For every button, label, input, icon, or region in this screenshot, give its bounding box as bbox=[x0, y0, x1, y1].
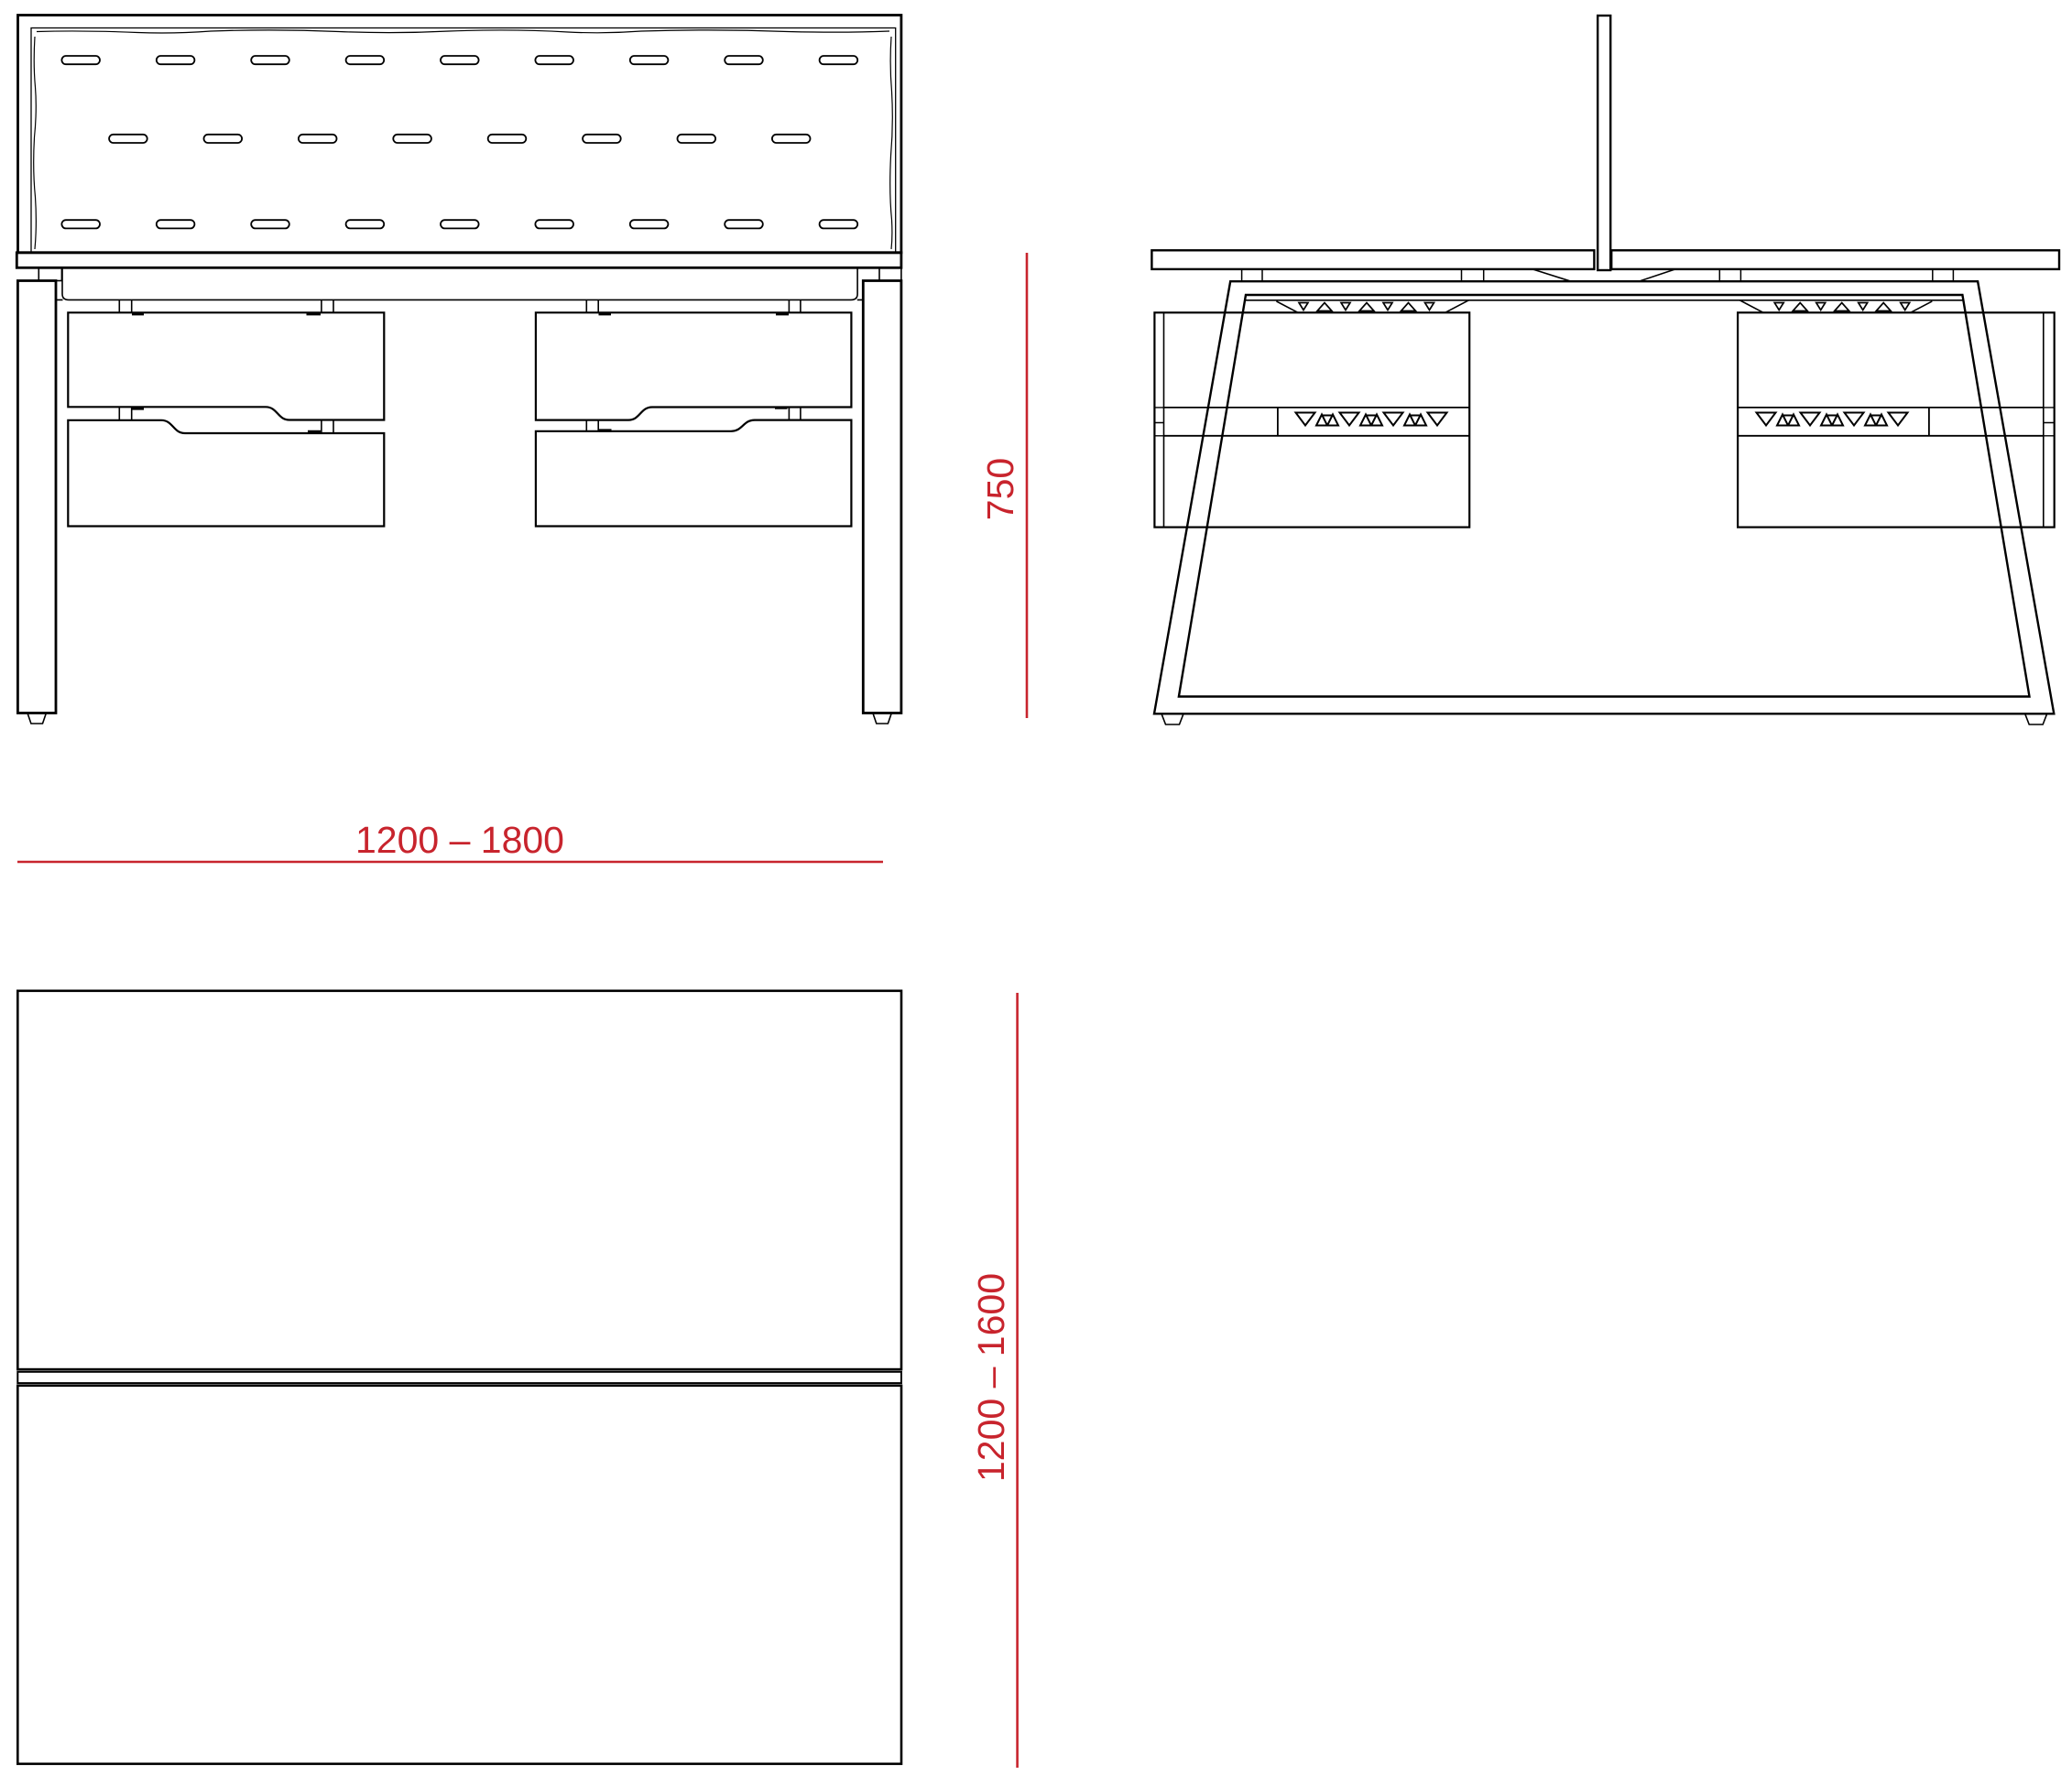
svg-text:750: 750 bbox=[979, 458, 1021, 520]
svg-text:1200 – 1800: 1200 – 1800 bbox=[355, 819, 564, 861]
svg-text:1200 – 1600: 1200 – 1600 bbox=[970, 1273, 1012, 1482]
